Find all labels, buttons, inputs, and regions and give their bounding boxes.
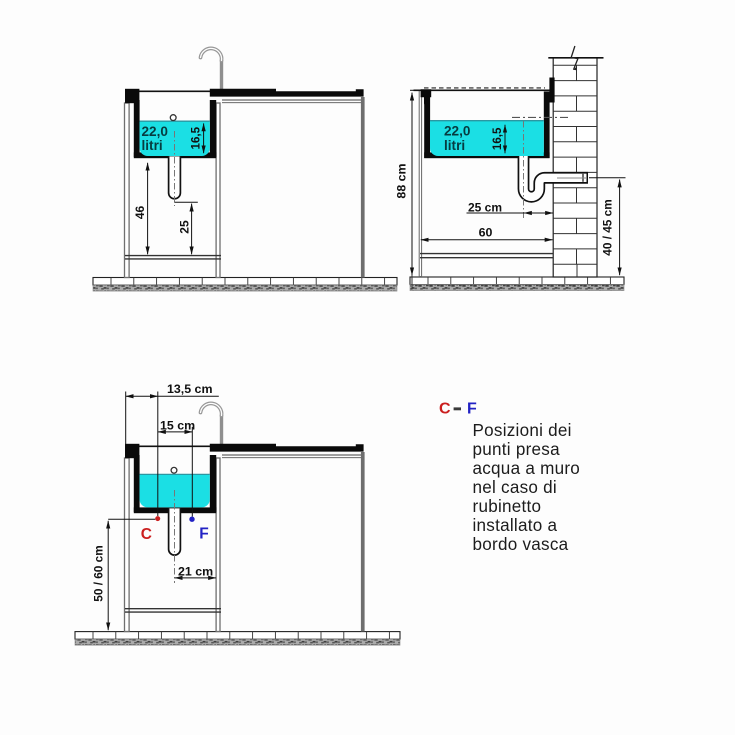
svg-text:25 cm: 25 cm [468,200,502,214]
svg-text:16,5: 16,5 [189,126,202,149]
svg-text:60: 60 [479,226,493,240]
svg-text:punti presa: punti presa [473,440,561,459]
svg-text:F: F [467,400,477,417]
svg-text:16,5: 16,5 [491,127,504,150]
svg-text:bordo vasca: bordo vasca [473,535,569,554]
svg-text:rubinetto: rubinetto [473,497,542,516]
svg-text:22,0: 22,0 [444,124,470,139]
svg-text:installato a: installato a [473,516,558,535]
svg-text:F: F [199,525,208,542]
svg-text:40 / 45 cm: 40 / 45 cm [601,199,615,255]
svg-text:nel caso di: nel caso di [473,478,557,497]
svg-text:litri: litri [444,138,465,153]
svg-text:46: 46 [133,206,147,220]
svg-text:C: C [141,526,152,543]
svg-text:88 cm: 88 cm [394,163,408,198]
svg-text:50 / 60 cm: 50 / 60 cm [92,545,106,601]
svg-text:15 cm: 15 cm [160,418,195,432]
svg-text:13,5 cm: 13,5 cm [167,382,212,396]
svg-text:25: 25 [178,220,192,234]
svg-text:22,0: 22,0 [142,124,168,139]
svg-text:21 cm: 21 cm [178,565,213,579]
svg-text:litri: litri [142,138,163,153]
svg-text:Posizioni dei: Posizioni dei [473,421,572,440]
svg-text:C: C [439,400,451,417]
svg-text:acqua a muro: acqua a muro [473,459,581,478]
